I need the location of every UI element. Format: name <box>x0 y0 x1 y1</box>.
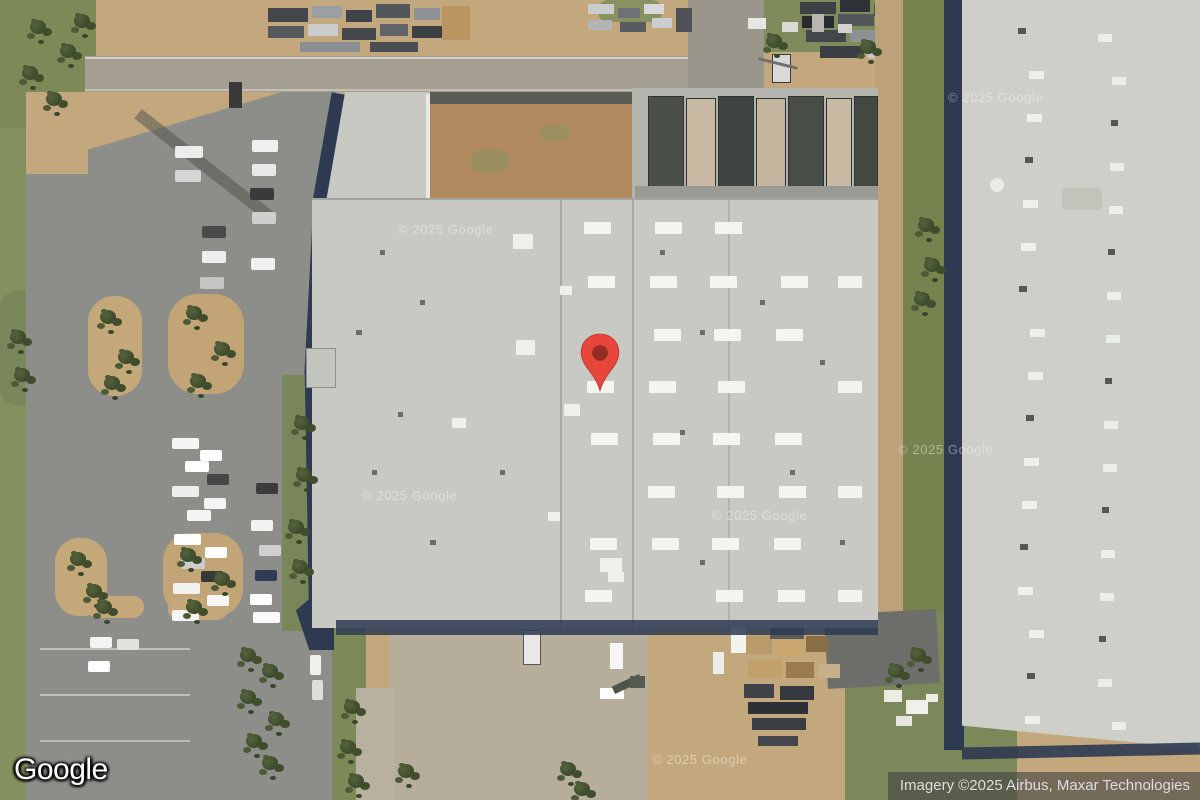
skylight <box>591 433 618 445</box>
roof-vent-small <box>500 470 505 475</box>
vehicle <box>713 652 724 674</box>
roof-vent <box>1103 464 1117 472</box>
tree <box>60 44 76 58</box>
tree <box>296 468 312 482</box>
car <box>200 277 224 289</box>
tree <box>574 782 590 796</box>
construction-material <box>412 26 442 38</box>
tree <box>100 310 116 324</box>
car <box>310 655 321 675</box>
tree <box>918 218 934 232</box>
roof-vent-small <box>372 470 377 475</box>
roof-vent <box>1098 679 1112 687</box>
skylight <box>710 276 737 288</box>
tree <box>292 560 308 574</box>
roof-vent <box>1025 716 1040 724</box>
skylight <box>715 222 742 234</box>
car <box>88 661 110 672</box>
construction-material <box>268 26 304 38</box>
construction-material <box>806 636 828 652</box>
weeds <box>470 150 510 172</box>
roof-vent <box>564 404 580 416</box>
weeds <box>540 125 570 141</box>
hvac-unit <box>648 96 684 190</box>
hvac-unit <box>854 96 878 190</box>
construction-material <box>300 42 360 52</box>
tree <box>344 700 360 714</box>
car <box>252 212 276 224</box>
roof-vent <box>1028 372 1043 380</box>
construction-material <box>758 736 798 746</box>
construction-material <box>346 10 372 22</box>
construction-material <box>744 684 774 698</box>
skylight <box>590 538 617 550</box>
roof-vent <box>1104 421 1118 429</box>
car <box>209 522 231 533</box>
tree <box>190 374 206 388</box>
car <box>250 188 274 200</box>
car <box>185 461 209 472</box>
construction-material <box>748 18 766 29</box>
skylight <box>718 381 745 393</box>
construction-material <box>776 640 802 656</box>
tree <box>246 734 262 748</box>
construction-material <box>786 662 814 678</box>
tree <box>262 756 278 770</box>
roof-ribbing <box>632 200 878 628</box>
roof-vent <box>1112 77 1126 85</box>
roof-vent <box>1102 507 1109 513</box>
landscape-island <box>86 596 144 618</box>
hvac-unit <box>686 98 716 188</box>
skylight <box>649 381 676 393</box>
parapet-panels <box>431 93 633 103</box>
roof-vent <box>1018 28 1026 34</box>
tree <box>910 648 926 662</box>
roof-vent <box>1029 71 1044 79</box>
car <box>175 170 201 182</box>
car <box>251 258 275 270</box>
skylight <box>584 222 611 234</box>
roof-vent-small <box>660 250 665 255</box>
tree <box>22 66 38 80</box>
hvac-unit <box>788 96 824 190</box>
roof-vent-small <box>680 430 685 435</box>
roof-vent <box>1112 722 1126 730</box>
car <box>252 140 278 152</box>
car <box>172 438 199 449</box>
roof-vent <box>516 340 535 355</box>
roof-vent <box>1025 157 1033 163</box>
road-line <box>85 89 697 91</box>
construction-material <box>884 690 902 702</box>
construction-material <box>370 42 418 52</box>
box-truck <box>610 643 623 669</box>
construction-material <box>652 18 672 28</box>
parking-stalls <box>167 632 233 747</box>
roof-vent <box>1111 120 1118 126</box>
construction-material <box>644 4 664 14</box>
tree <box>766 34 782 48</box>
trailer <box>772 54 791 83</box>
barrier-row <box>110 66 240 77</box>
car <box>253 612 280 623</box>
roof-vent <box>990 178 1004 192</box>
roof-vent <box>1107 292 1121 300</box>
roof-structure <box>1062 188 1102 210</box>
construction-material <box>748 660 782 678</box>
entrance-canopy <box>306 348 336 388</box>
tree <box>74 14 90 28</box>
roof-vent <box>1020 544 1028 550</box>
road <box>688 0 764 94</box>
construction-material <box>742 636 772 654</box>
construction-material <box>906 700 928 714</box>
dirt-courtyard <box>430 104 632 198</box>
construction-material <box>752 718 806 730</box>
tree <box>96 600 112 614</box>
hvac-unit <box>718 96 754 190</box>
roof-vent-small <box>430 540 436 545</box>
tree <box>914 292 930 306</box>
roof-vent-small <box>700 560 705 565</box>
skylight <box>838 276 862 288</box>
construction-material <box>840 0 870 12</box>
tree <box>180 548 196 562</box>
roof-vent-small <box>820 360 825 365</box>
roof-vent <box>1106 335 1120 343</box>
construction-material <box>896 716 912 726</box>
roof-vent-small <box>790 470 795 475</box>
car <box>117 639 139 650</box>
construction-material <box>342 28 376 40</box>
car <box>187 510 211 521</box>
tree <box>240 690 256 704</box>
skylight <box>778 590 805 602</box>
car <box>251 520 273 531</box>
car <box>175 146 203 158</box>
skylight <box>717 486 744 498</box>
roof-vent-small <box>398 412 403 417</box>
car <box>172 486 199 497</box>
construction-material <box>926 694 938 702</box>
construction-material <box>780 686 814 700</box>
construction-material <box>676 8 692 32</box>
tree <box>560 762 576 776</box>
tree <box>70 552 86 566</box>
construction-material <box>618 8 640 18</box>
car <box>312 680 323 700</box>
car <box>173 583 200 594</box>
skylight <box>781 276 808 288</box>
car <box>252 164 276 176</box>
tree <box>14 368 30 382</box>
roof-vent-small <box>356 330 362 335</box>
car <box>202 226 226 238</box>
tree <box>348 774 364 788</box>
landscape-island <box>168 294 244 394</box>
car <box>255 570 277 581</box>
construction-material <box>588 20 612 30</box>
tree <box>268 712 284 726</box>
construction-material <box>620 22 646 32</box>
construction-material <box>380 24 408 36</box>
construction-material <box>812 14 824 32</box>
roof-vent <box>608 572 624 582</box>
roof-vent <box>1105 378 1112 384</box>
skylight <box>653 433 680 445</box>
skylight <box>655 222 682 234</box>
roof-vent-small <box>760 300 765 305</box>
car <box>207 595 229 606</box>
tree <box>10 330 26 344</box>
construction-material <box>312 6 342 18</box>
skylight <box>652 538 679 550</box>
tree <box>860 40 876 54</box>
skylight <box>585 590 612 602</box>
construction-material <box>308 24 338 36</box>
skylight <box>779 486 806 498</box>
construction-material <box>588 4 614 14</box>
satellite-map[interactable]: © 2025 Google© 2025 Google© 2025 Google©… <box>0 0 1200 800</box>
car <box>174 534 201 545</box>
roof-vent-small <box>380 250 385 255</box>
roof-vent <box>1100 593 1114 601</box>
car <box>205 547 227 558</box>
car <box>207 474 229 485</box>
skylight <box>838 486 862 498</box>
skylight <box>775 433 802 445</box>
tree <box>340 740 356 754</box>
construction-material <box>748 702 808 714</box>
skylight <box>588 276 615 288</box>
skylight <box>838 381 862 393</box>
skylight <box>648 486 675 498</box>
roof-vent-small <box>700 330 705 335</box>
roof-vent <box>1018 587 1033 595</box>
hvac-unit <box>826 98 852 188</box>
tree <box>186 306 202 320</box>
construction-material <box>414 8 440 20</box>
roof-vent-small <box>420 300 425 305</box>
roof-vent <box>1109 206 1123 214</box>
tree <box>186 600 202 614</box>
vehicle <box>229 82 242 108</box>
hvac-unit <box>756 98 786 188</box>
skylight <box>838 590 862 602</box>
tree <box>398 764 414 778</box>
construction-material <box>818 664 840 678</box>
roof-vent <box>1019 286 1027 292</box>
construction-material <box>442 6 470 40</box>
car <box>256 483 278 494</box>
roof-vent <box>1023 200 1038 208</box>
roof-vent <box>1098 34 1112 42</box>
roof-vent <box>560 286 572 295</box>
construction-material <box>838 24 852 33</box>
car <box>90 637 112 648</box>
tree <box>30 20 46 34</box>
tree <box>888 664 904 678</box>
tree <box>118 350 134 364</box>
skylight <box>714 329 741 341</box>
building-shadow <box>336 620 878 635</box>
car <box>250 594 272 605</box>
tree <box>294 416 310 430</box>
car <box>259 545 281 556</box>
construction-material <box>268 8 308 22</box>
car <box>200 450 222 461</box>
roof-seam <box>560 200 562 628</box>
building-shadow <box>944 0 964 750</box>
skylight <box>776 329 803 341</box>
roof-vent <box>1026 415 1034 421</box>
roof-vent <box>548 512 560 521</box>
car <box>202 251 226 263</box>
skylight <box>713 433 740 445</box>
roof-vent <box>1029 630 1044 638</box>
skylight <box>654 329 681 341</box>
tree <box>214 572 230 586</box>
car <box>204 498 226 509</box>
map-pin-icon[interactable] <box>578 331 622 394</box>
roof-vent <box>513 234 533 249</box>
construction-material <box>782 22 798 32</box>
tree <box>86 584 102 598</box>
roof-vent-small <box>840 540 845 545</box>
construction-material <box>800 2 836 14</box>
roof-vent <box>600 558 622 572</box>
roof-vent <box>1110 163 1124 171</box>
tree <box>104 376 120 390</box>
excavator <box>630 676 645 688</box>
tree <box>214 342 230 356</box>
google-logo[interactable]: Google <box>14 753 108 787</box>
roof-vent <box>1021 243 1036 251</box>
tree <box>924 258 940 272</box>
roof-vent <box>1024 458 1039 466</box>
tree <box>288 520 304 534</box>
skylight <box>712 538 739 550</box>
construction-material <box>820 46 864 58</box>
roof-vent <box>1101 550 1115 558</box>
tree <box>240 648 256 662</box>
roof-vent <box>1099 636 1106 642</box>
warehouse-roof-east <box>962 0 1200 772</box>
imagery-attribution: Imagery ©2025 Airbus, Maxar Technologies <box>888 772 1200 800</box>
tree <box>46 92 62 106</box>
roof-vent <box>1022 501 1037 509</box>
skylight <box>650 276 677 288</box>
skylight <box>716 590 743 602</box>
construction-material <box>376 4 410 18</box>
roof-vent <box>1108 249 1115 255</box>
roof-vent <box>452 418 466 428</box>
road-line <box>85 57 697 59</box>
roof-vent <box>1027 114 1042 122</box>
box-truck <box>523 630 541 665</box>
roof-vent <box>1030 329 1045 337</box>
skylight <box>774 538 801 550</box>
tree <box>262 664 278 678</box>
roof-vent <box>1027 673 1035 679</box>
